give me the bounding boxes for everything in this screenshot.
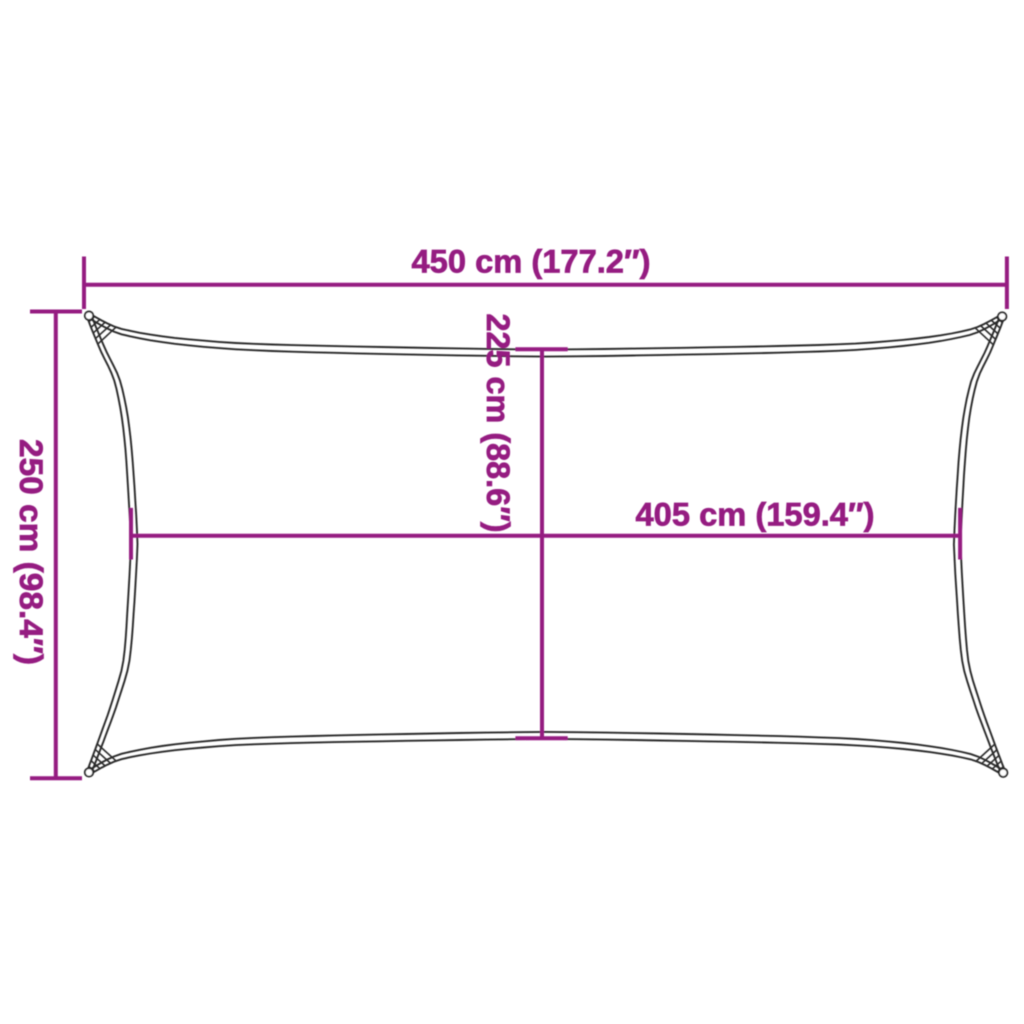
svg-text:450 cm (177.2″): 450 cm (177.2″) bbox=[412, 243, 651, 279]
svg-text:225 cm (88.6″): 225 cm (88.6″) bbox=[480, 314, 516, 533]
svg-text:405 cm (159.4″): 405 cm (159.4″) bbox=[636, 497, 875, 533]
svg-text:250 cm (98.4″): 250 cm (98.4″) bbox=[13, 439, 49, 665]
